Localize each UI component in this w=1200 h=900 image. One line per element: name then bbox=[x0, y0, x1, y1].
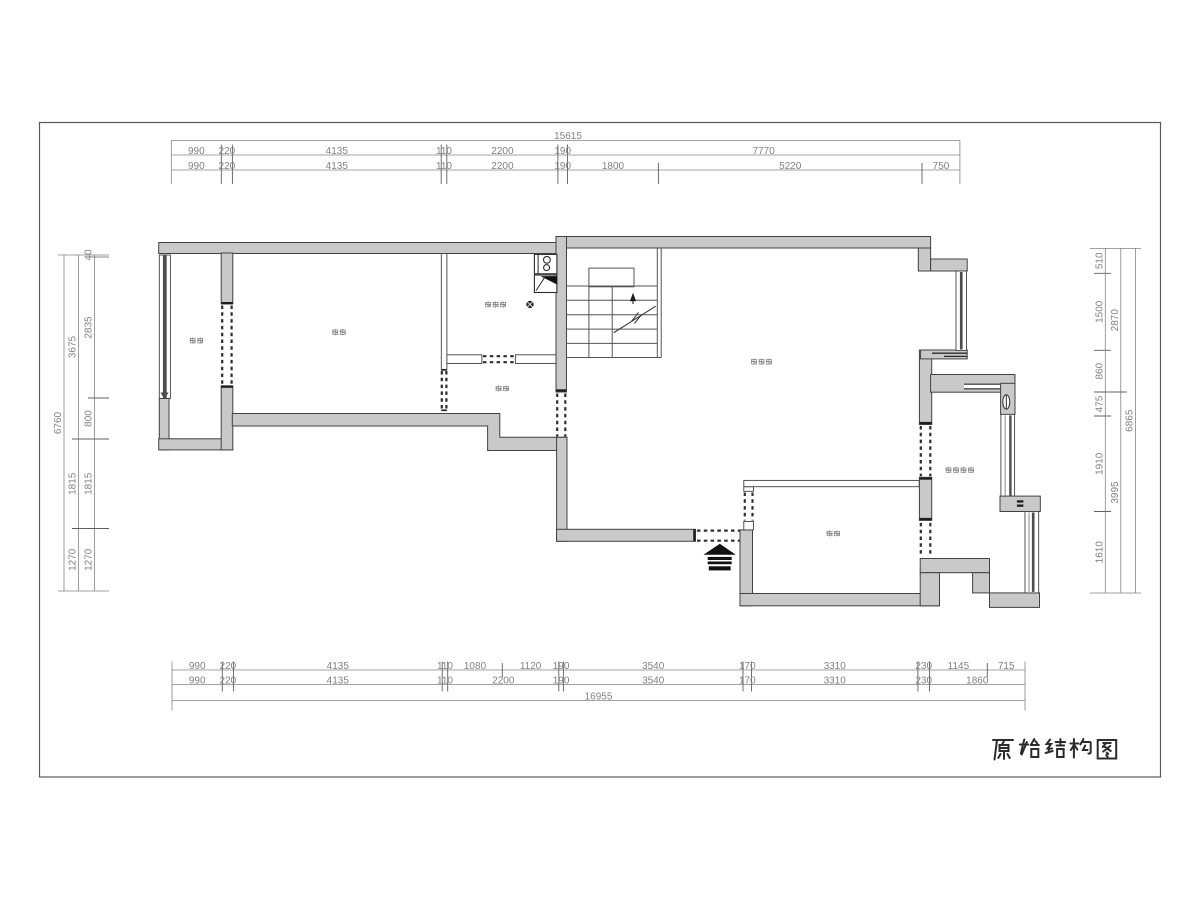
svg-text:6865: 6865 bbox=[1125, 409, 1136, 432]
svg-text:3540: 3540 bbox=[642, 675, 665, 686]
svg-text:1270: 1270 bbox=[68, 548, 79, 571]
svg-text:110: 110 bbox=[436, 146, 452, 157]
svg-text:510: 510 bbox=[1094, 252, 1105, 269]
svg-text:1610: 1610 bbox=[1094, 541, 1105, 564]
svg-text:16955: 16955 bbox=[585, 691, 613, 702]
svg-text:750: 750 bbox=[933, 161, 950, 172]
svg-text:40: 40 bbox=[84, 249, 95, 261]
svg-text:220: 220 bbox=[220, 661, 237, 672]
svg-text:3310: 3310 bbox=[824, 675, 847, 686]
svg-text:190: 190 bbox=[554, 146, 571, 157]
svg-text:190: 190 bbox=[554, 161, 571, 172]
svg-text:990: 990 bbox=[189, 661, 206, 672]
svg-text:1080: 1080 bbox=[464, 661, 487, 672]
svg-text:2870: 2870 bbox=[1110, 309, 1121, 332]
svg-text:5220: 5220 bbox=[779, 161, 802, 172]
svg-text:110: 110 bbox=[437, 675, 453, 686]
svg-text:220: 220 bbox=[219, 146, 236, 157]
svg-text:990: 990 bbox=[188, 161, 205, 172]
svg-text:110: 110 bbox=[436, 161, 452, 172]
svg-text:4135: 4135 bbox=[326, 146, 349, 157]
svg-text:990: 990 bbox=[188, 146, 205, 157]
svg-text:1500: 1500 bbox=[1094, 300, 1105, 323]
svg-text:990: 990 bbox=[189, 675, 206, 686]
svg-text:3995: 3995 bbox=[1110, 481, 1121, 504]
svg-text:1815: 1815 bbox=[84, 472, 95, 495]
svg-text:7770: 7770 bbox=[753, 146, 776, 157]
svg-text:1800: 1800 bbox=[602, 161, 625, 172]
svg-text:1145: 1145 bbox=[948, 661, 970, 672]
svg-text:860: 860 bbox=[1094, 362, 1105, 379]
svg-text:190: 190 bbox=[553, 675, 570, 686]
svg-text:475: 475 bbox=[1094, 395, 1105, 412]
svg-text:4135: 4135 bbox=[326, 161, 349, 172]
svg-text:190: 190 bbox=[553, 661, 570, 672]
svg-text:2200: 2200 bbox=[492, 675, 515, 686]
svg-text:3540: 3540 bbox=[642, 661, 665, 672]
svg-text:1120: 1120 bbox=[520, 661, 542, 672]
svg-text:715: 715 bbox=[998, 661, 1015, 672]
svg-text:230: 230 bbox=[915, 661, 932, 672]
svg-text:2200: 2200 bbox=[491, 161, 514, 172]
svg-text:2835: 2835 bbox=[84, 316, 95, 339]
svg-text:220: 220 bbox=[219, 161, 236, 172]
svg-text:1815: 1815 bbox=[68, 472, 79, 495]
svg-text:6760: 6760 bbox=[53, 411, 64, 434]
svg-text:4135: 4135 bbox=[327, 675, 350, 686]
svg-text:4135: 4135 bbox=[327, 661, 350, 672]
svg-text:3675: 3675 bbox=[68, 335, 79, 358]
svg-text:1860: 1860 bbox=[966, 675, 989, 686]
svg-text:3310: 3310 bbox=[824, 661, 847, 672]
svg-text:220: 220 bbox=[220, 675, 237, 686]
svg-text:15615: 15615 bbox=[554, 131, 582, 142]
svg-text:2200: 2200 bbox=[491, 146, 514, 157]
svg-text:170: 170 bbox=[739, 675, 756, 686]
svg-text:1270: 1270 bbox=[84, 548, 95, 571]
svg-text:230: 230 bbox=[915, 675, 932, 686]
svg-text:800: 800 bbox=[84, 410, 95, 427]
svg-text:170: 170 bbox=[739, 661, 756, 672]
svg-text:1910: 1910 bbox=[1094, 452, 1105, 475]
svg-text:110: 110 bbox=[437, 661, 453, 672]
